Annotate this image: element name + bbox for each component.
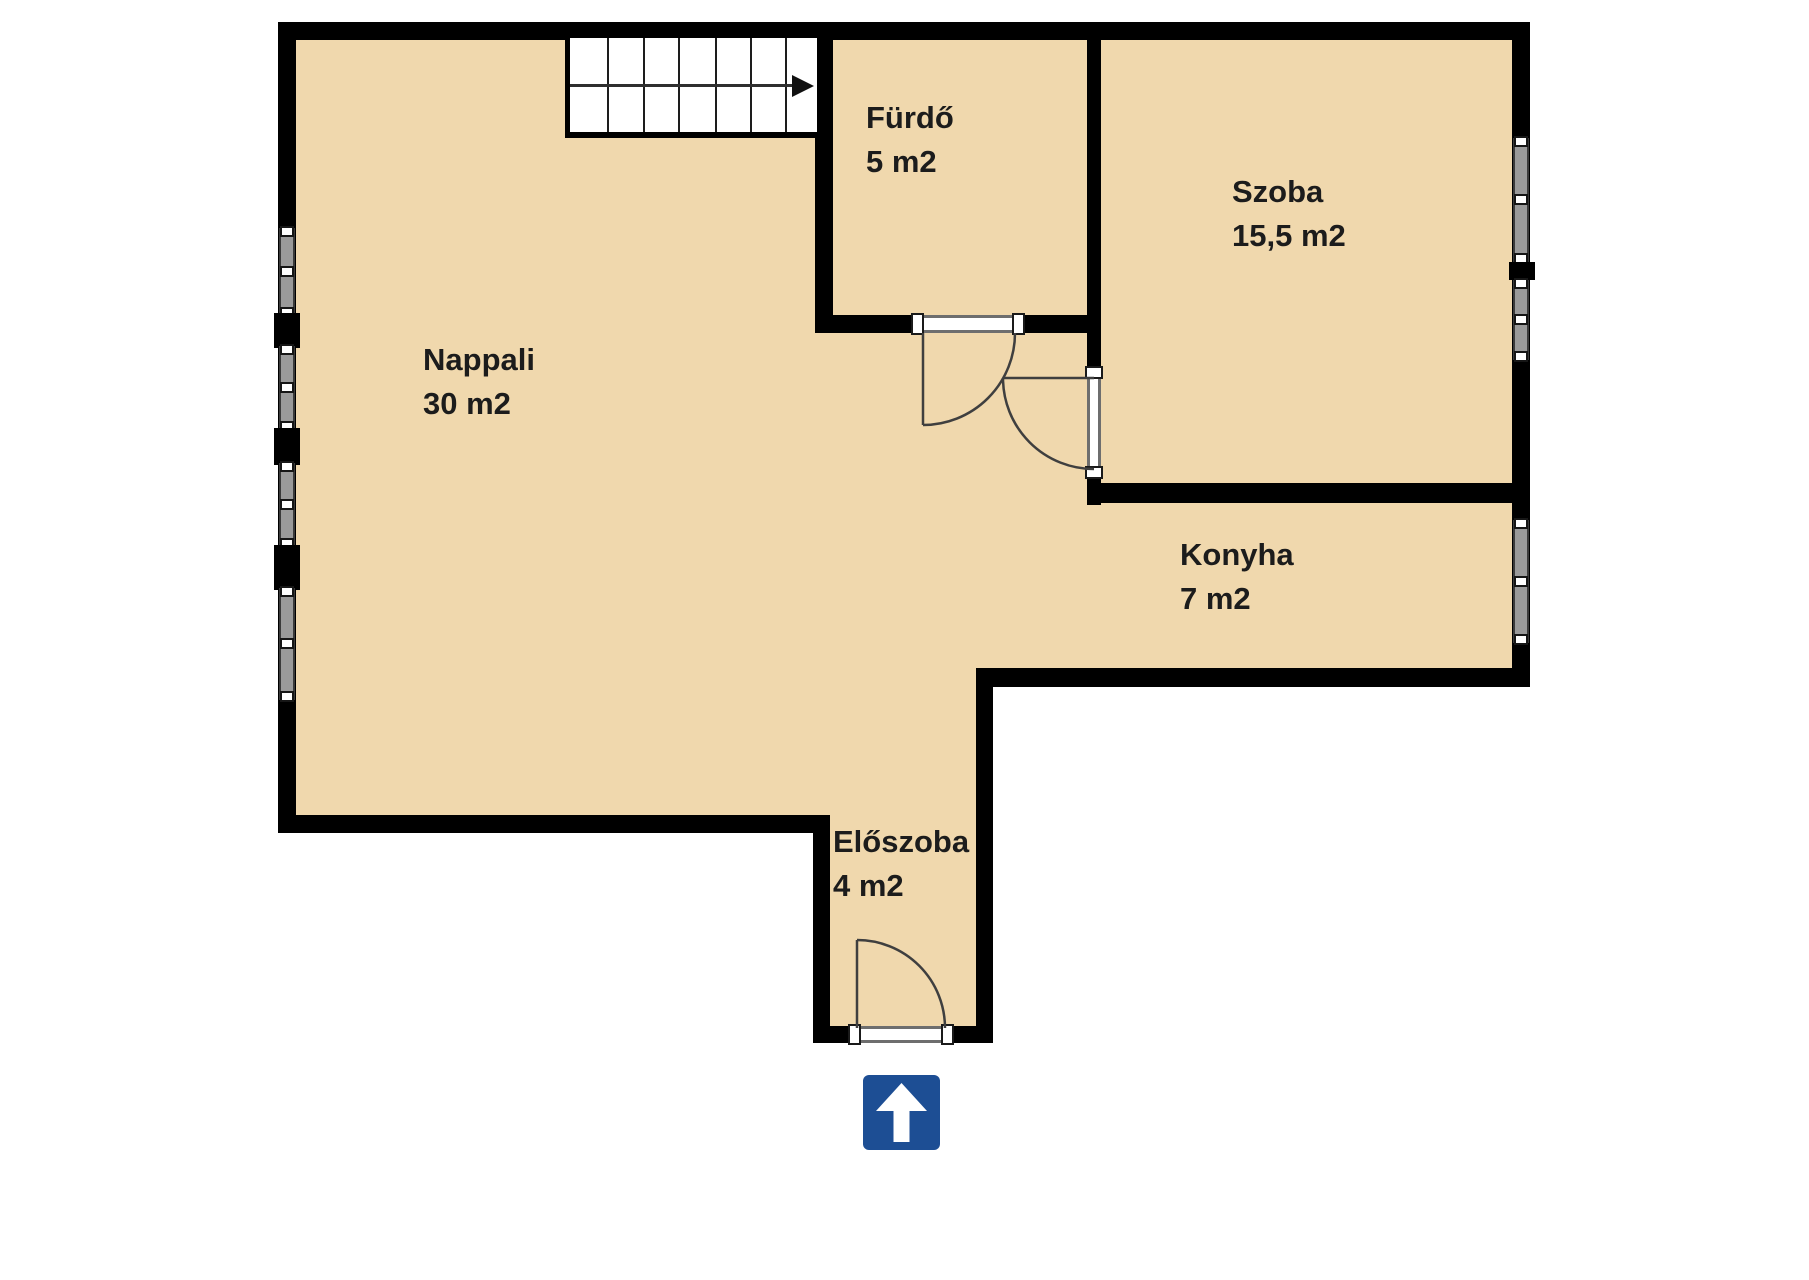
room-label-nappali: Nappali 30 m2: [423, 338, 535, 426]
window-handle: [280, 266, 294, 277]
window-handle: [1514, 136, 1528, 147]
room-area: 7 m2: [1180, 577, 1294, 621]
window-handle: [1514, 518, 1528, 529]
room-area: 15,5 m2: [1232, 214, 1346, 258]
window: [279, 463, 295, 547]
wall-konyha-bottom: [976, 668, 1530, 687]
room-label-furdo: Fürdő 5 m2: [866, 96, 954, 184]
window-handle: [1514, 278, 1528, 289]
window-handle: [280, 586, 294, 597]
room-name: Szoba: [1232, 170, 1346, 214]
window-handle: [280, 691, 294, 702]
window: [1513, 280, 1529, 360]
window-handle: [1514, 314, 1528, 325]
window: [279, 588, 295, 700]
window: [279, 228, 295, 316]
threshold-cap: [1085, 366, 1103, 379]
door-threshold-szoba: [1087, 368, 1101, 477]
window-handle: [280, 344, 294, 355]
room-area: 5 m2: [866, 140, 954, 184]
window-handle: [280, 638, 294, 649]
wall-nappali-bottom: [278, 815, 830, 833]
room-name: Konyha: [1180, 533, 1294, 577]
room-name: Nappali: [423, 338, 535, 382]
window-mullion: [274, 545, 300, 590]
floorplan-canvas: Nappali 30 m2 Fürdő 5 m2 Szoba 15,5 m2 K…: [0, 0, 1809, 1280]
window-handle: [1514, 194, 1528, 205]
entrance-arrow-sign: [863, 1075, 940, 1150]
window-handle: [280, 226, 294, 237]
stairs-up-arrow-icon: [792, 75, 814, 97]
wall-nappali-furdo: [815, 22, 833, 333]
room-area: 30 m2: [423, 382, 535, 426]
window-mullion: [274, 313, 300, 348]
door-threshold-furdo: [913, 315, 1025, 333]
wall-eloszoba-left: [813, 815, 830, 1043]
entrance-arrow-icon: [863, 1075, 940, 1150]
room-label-eloszoba: Előszoba 4 m2: [833, 820, 969, 908]
wall-top: [278, 22, 1530, 40]
window: [279, 346, 295, 430]
floor-hall-lower: [296, 668, 976, 817]
wall-szoba-konyha: [1087, 483, 1530, 503]
room-area: 4 m2: [833, 864, 969, 908]
stair-direction-line: [570, 84, 798, 87]
window-handle: [280, 382, 294, 393]
window: [1513, 520, 1529, 643]
room-name: Előszoba: [833, 820, 969, 864]
window-handle: [280, 461, 294, 472]
room-label-konyha: Konyha 7 m2: [1180, 533, 1294, 621]
threshold-cap: [941, 1024, 954, 1045]
wall-eloszoba-right: [976, 668, 993, 1043]
staircase: [565, 38, 817, 138]
window-mullion: [274, 428, 300, 465]
threshold-cap: [848, 1024, 861, 1045]
window-handle: [1514, 576, 1528, 587]
door-threshold-entrance: [850, 1026, 953, 1043]
threshold-cap: [911, 313, 924, 335]
window-handle: [280, 499, 294, 510]
threshold-cap: [1085, 466, 1103, 479]
threshold-cap: [1012, 313, 1025, 335]
window-handle: [1514, 351, 1528, 362]
window: [1513, 138, 1529, 262]
room-name: Fürdő: [866, 96, 954, 140]
window-handle: [1514, 634, 1528, 645]
room-label-szoba: Szoba 15,5 m2: [1232, 170, 1346, 258]
